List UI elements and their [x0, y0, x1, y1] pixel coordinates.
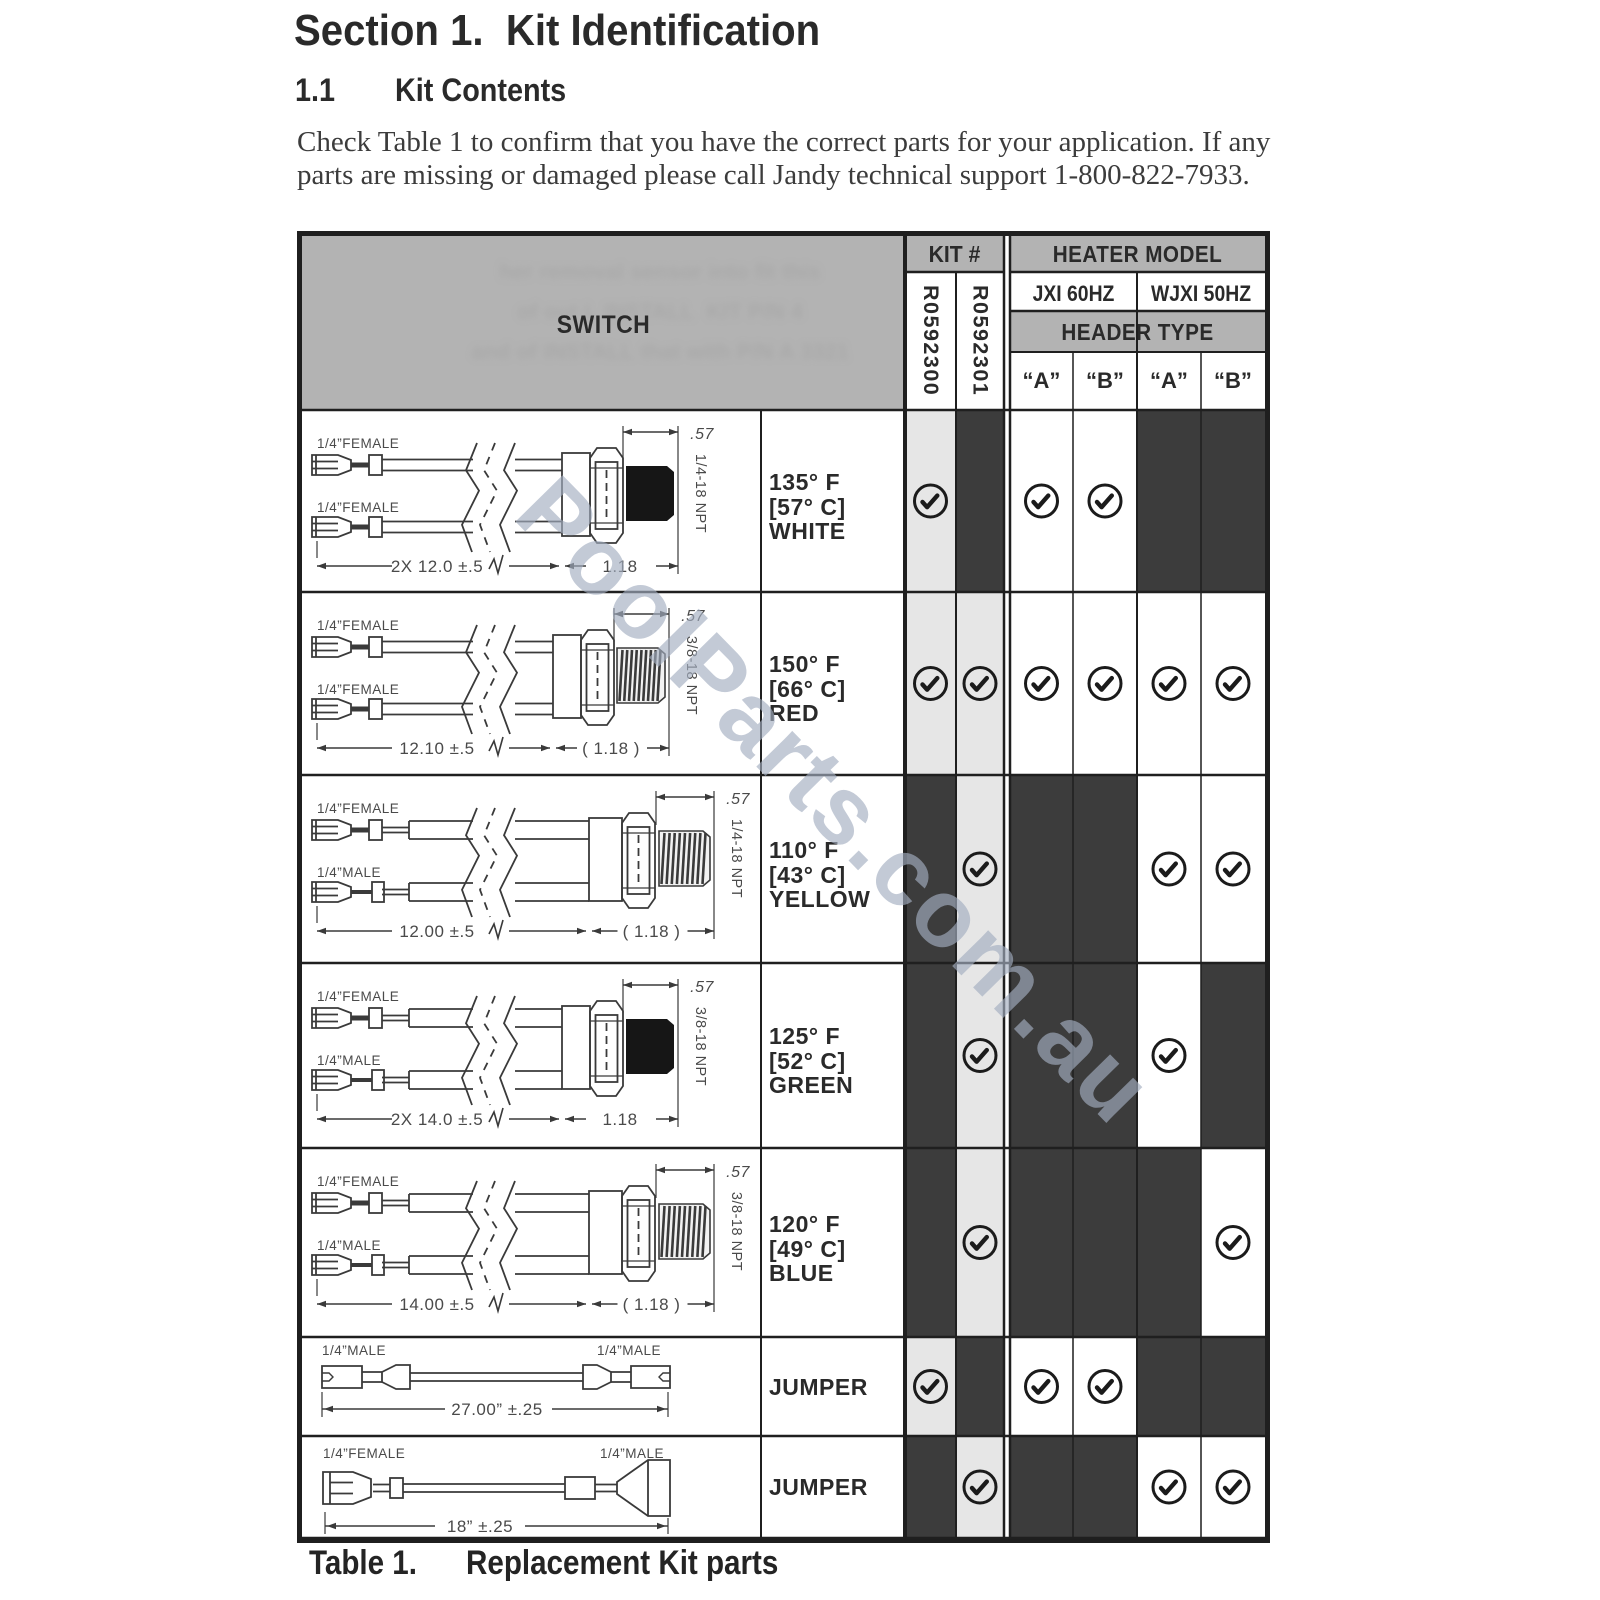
svg-text:1/4”FEMALE: 1/4”FEMALE [317, 801, 399, 816]
svg-text:1/4”MALE: 1/4”MALE [317, 1238, 381, 1253]
svg-text:1/4”FEMALE: 1/4”FEMALE [317, 618, 399, 633]
svg-text:.57: .57 [726, 1164, 750, 1181]
svg-text:1/4-18 NPT: 1/4-18 NPT [692, 454, 708, 533]
svg-text:12.00 ±.5: 12.00 ±.5 [399, 922, 474, 941]
svg-text:1/4”MALE: 1/4”MALE [597, 1343, 661, 1358]
svg-text:1/4”MALE: 1/4”MALE [317, 1053, 381, 1068]
svg-text:1/4”MALE: 1/4”MALE [322, 1343, 386, 1358]
svg-text:1/4”FEMALE: 1/4”FEMALE [317, 682, 399, 697]
svg-text:1/4-18 NPT: 1/4-18 NPT [728, 819, 744, 898]
svg-text:.57: .57 [726, 791, 750, 808]
svg-text:3/8-18 NPT: 3/8-18 NPT [728, 1192, 744, 1271]
svg-text:1/4”MALE: 1/4”MALE [317, 865, 381, 880]
svg-text:1.18: 1.18 [602, 1110, 637, 1129]
svg-text:.57: .57 [690, 979, 714, 996]
svg-text:3/8-18 NPT: 3/8-18 NPT [692, 1007, 708, 1086]
svg-text:( 1.18 ): ( 1.18 ) [623, 922, 681, 941]
svg-text:2X 12.0 ±.5: 2X 12.0 ±.5 [391, 557, 483, 576]
svg-text:( 1.18 ): ( 1.18 ) [623, 1295, 681, 1314]
svg-text:27.00” ±.25: 27.00” ±.25 [451, 1400, 542, 1419]
svg-text:14.00 ±.5: 14.00 ±.5 [399, 1295, 474, 1314]
svg-text:18” ±.25: 18” ±.25 [447, 1517, 513, 1536]
svg-text:1/4”FEMALE: 1/4”FEMALE [317, 989, 399, 1004]
svg-text:1/4”FEMALE: 1/4”FEMALE [317, 436, 399, 451]
svg-text:1/4”FEMALE: 1/4”FEMALE [317, 500, 399, 515]
svg-text:12.10 ±.5: 12.10 ±.5 [399, 739, 474, 758]
svg-text:.57: .57 [690, 426, 714, 443]
svg-text:1/4”FEMALE: 1/4”FEMALE [323, 1446, 405, 1461]
svg-text:( 1.18 ): ( 1.18 ) [582, 739, 640, 758]
svg-text:1/4”FEMALE: 1/4”FEMALE [317, 1174, 399, 1189]
svg-text:1/4”MALE: 1/4”MALE [600, 1446, 664, 1461]
svg-text:2X 14.0 ±.5: 2X 14.0 ±.5 [391, 1110, 483, 1129]
